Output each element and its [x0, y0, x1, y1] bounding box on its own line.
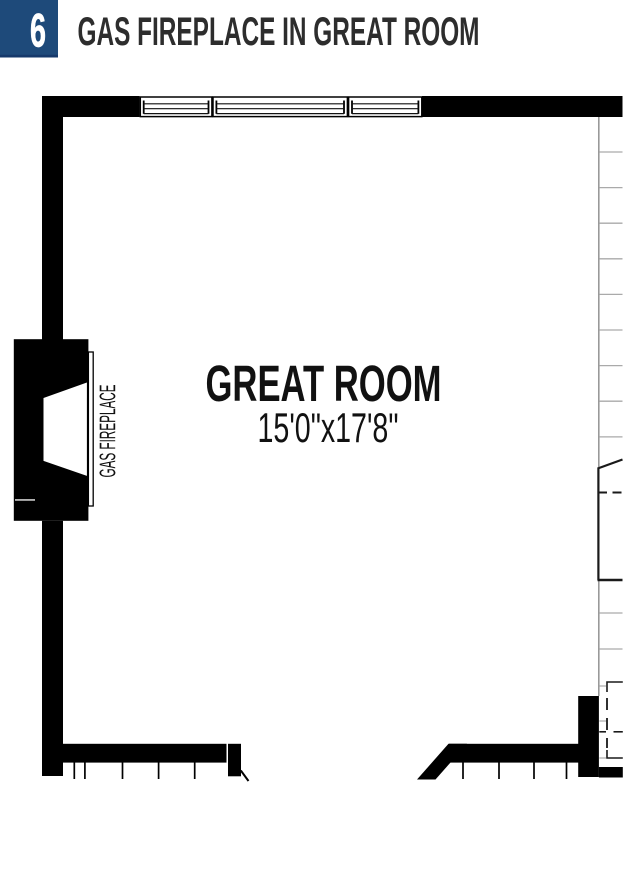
svg-text:GAS FIREPLACE IN GREAT ROOM: GAS FIREPLACE IN GREAT ROOM: [78, 9, 480, 54]
svg-text:6: 6: [30, 4, 46, 57]
svg-text:15'0"x17'8": 15'0"x17'8": [258, 404, 399, 451]
